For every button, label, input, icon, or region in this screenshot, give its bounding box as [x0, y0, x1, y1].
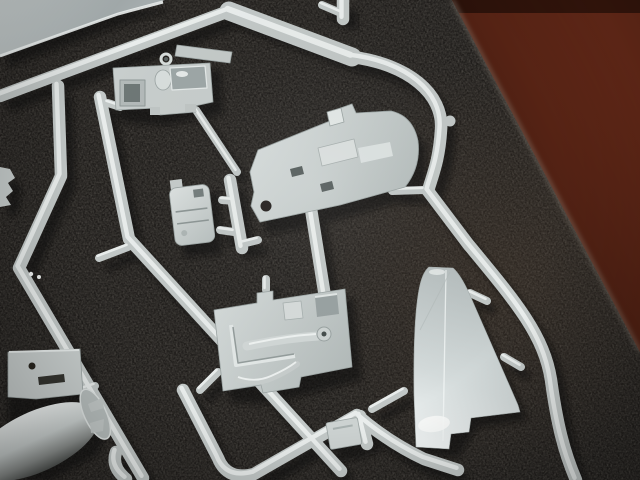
sprue-photo-canvas [0, 0, 640, 480]
vignette-overlay [0, 0, 640, 480]
photo-model-kit-sprue: Close-up photograph of a light-grey inje… [0, 0, 640, 480]
